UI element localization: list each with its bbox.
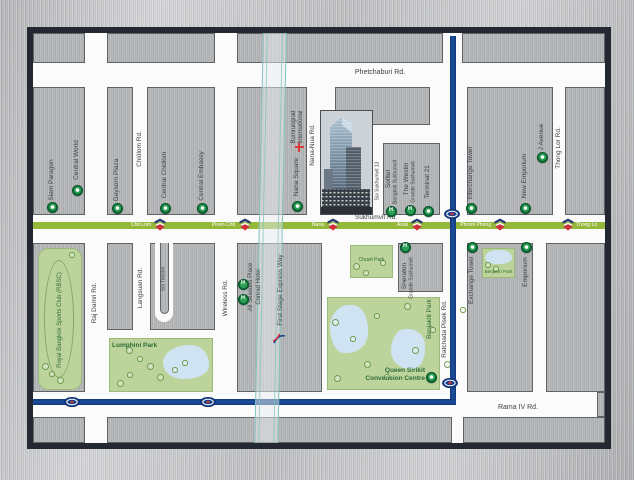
city-block-south [107,417,452,443]
road-label-rama-iv: Rama IV Rd. [473,404,563,412]
road-label-phetchaburi: Phetchaburi Rd. [335,69,425,77]
benjakiti-lake-1 [330,305,368,353]
city-block-east [565,87,605,215]
tree-icon [412,347,419,354]
bts-station-icon [327,218,339,231]
hotel-marker-sofitel: H [386,206,397,217]
bts-station-label-chit-lom: Chit Lom [111,222,151,229]
road-label-wireless: Wireless Rd. [223,280,230,317]
city-block-south [463,417,605,443]
place-label-westin-line2: Grande Sukhumvit [412,161,417,202]
park-label-benjakiti: Benjakiti Park [427,299,434,339]
road-label-ratchada-pisek: Ratchada Pisek Rd. [442,300,449,357]
tree-icon [147,363,154,370]
place-label-all-seasons-line2: Conrad Hotel [256,269,262,304]
place-label-westin-line1: The Westin [404,163,411,196]
place-label-siam-paragon: Siam Paragon [49,159,56,200]
place-label-sheraton-line2: Grande Sukhumvit [410,257,415,298]
place-label-bumrungrad-line2: International [298,110,304,143]
poi-marker-j-avenue [537,152,548,163]
park-label-benjasiri: Benjasiri Park [479,269,518,274]
road-label-langsuan: Langsuan Rd. [138,268,145,308]
expressway-logo-icon [272,332,286,346]
poi-marker-gaysorn-plaza [112,203,123,214]
tree-icon [127,372,133,378]
bts-station-icon [494,218,506,231]
place-label-new-emporium: New Emporium [522,154,529,198]
place-label-exchange-tower: Exchange Tower [469,256,476,304]
city-block [462,33,605,63]
poi-marker-qsncc [426,372,437,383]
road-label-chidlom: Chidlom Rd. [137,131,144,167]
tree-icon [332,319,339,326]
bts-station-label-ploen-chit: Ploen Chit [195,222,235,229]
road-label-soi-tonson: Soi Tonson [162,267,167,292]
poi-marker-new-emporium [520,203,531,214]
bts-station-label-thong-lo: Thong Lo [576,222,605,229]
poi-marker-central-chidlom [160,203,171,214]
venue-label-qsncc-line1: Queen Sirikit [345,367,425,374]
place-label-central-chidlom: Central Chidlom [162,152,169,199]
poi-marker-exchange-tower [467,242,478,253]
hotel-marker-westin: H [405,205,416,216]
road-label-thong-lor: Thong Lor Rd. [556,127,563,169]
road-label-sukhumvit: Sukhumvit Rd. [336,214,416,221]
city-block [107,33,215,63]
place-label-emporium: Emporium [523,257,530,287]
mrt-station-icon [200,397,216,407]
road-label-expressway: First Stage Express Way [278,254,285,325]
city-block-langsuan-w [107,243,133,330]
hotel-marker-sheraton: H [400,242,411,253]
place-label-sheraton-line1: Sheraton [402,263,409,289]
tree-icon [137,356,143,362]
mrt-station-icon [442,378,458,388]
tree-icon [182,360,188,366]
place-label-gaysorn-plaza: Gaysorn Plaza [114,159,121,202]
tree-icon [117,380,124,387]
bts-station-label-phrom-phong: Phrom Phong [449,222,491,229]
tree-icon [172,367,178,373]
road-label-raj-damri: Raj Damri Rd. [92,283,99,324]
tree-icon [334,375,341,382]
tree-icon [157,374,164,381]
place-label-sofitel-line2: Bangkok Sukhumvit [394,160,399,204]
poi-marker-terminal-21 [423,206,434,217]
city-block-interchange [467,87,553,215]
place-label-j-avenue: J Avenue [539,124,546,151]
bts-station-icon [154,218,166,231]
place-label-all-seasons-line1: All Seasons Place [248,263,254,311]
tree-icon [42,363,49,370]
bts-station-icon [562,218,574,231]
skyscraper-illustration [321,111,372,214]
poi-marker-siam-paragon [47,202,58,213]
hotel-marker-conrad: H [238,294,249,305]
street-map: Phetchaburi Rd. Sukhumvit Rd. Rama IV Rd… [33,33,605,443]
place-label-sofitel-line1: Sofitel [386,170,393,188]
benjakiti-lake-2 [391,329,425,369]
park-label-rbsc: Royal Bangkok Sports Club (RBSC) [57,272,63,368]
place-label-nana-square: Nana Square [294,158,301,196]
hotel-marker-all-seasons: H [238,279,249,290]
place-label-terminal-21: Terminal 21 [425,165,432,199]
city-block-south [33,417,85,443]
road-label-nana-nua: Nana-Nua Rd. [310,124,317,166]
bts-station-icon [411,218,423,231]
poi-marker-central-embassy [197,203,208,214]
interchange21-tower-photo [320,110,373,215]
tree-icon [69,252,75,258]
tree-icon [49,371,55,377]
city-block-emporium [546,243,605,392]
bts-station-icon [239,218,251,231]
bts-station-label-asok: Asok [368,222,408,229]
poi-marker-emporium [521,242,532,253]
poi-marker-nana-square [292,201,303,212]
poi-marker-interchange-tower [466,203,477,214]
park-label-lumphini: Lumphini Park [112,342,157,349]
city-block-sliver [597,392,605,417]
city-block [33,33,85,63]
tree-icon [57,377,64,384]
place-label-central-world: Central World [74,140,81,180]
brushed-metal-background: Phetchaburi Rd. Sukhumvit Rd. Rama IV Rd… [0,0,634,480]
tree-icon [485,262,491,268]
place-label-bumrungrad-line1: Bumrungrad [291,110,297,143]
place-label-interchange-tower: Interchange Tower [468,146,475,199]
mrt-blue-line-vertical [450,36,456,404]
hospital-cross-icon-bumrungrad [295,143,304,152]
road-label-soi-sukhumvit-13: Soi Sukhumvit 13 [376,162,381,201]
tree-icon [350,336,356,342]
park-label-chuvit: Chuvit Park [350,258,393,263]
mrt-station-icon [64,397,80,407]
venue-label-qsncc-line2: Convension Centre [345,375,425,382]
bts-station-label-nana: Nana [284,222,324,229]
tree-icon [374,313,380,319]
mrt-blue-line-horizontal [33,399,456,405]
tree-icon [460,307,466,313]
tree-icon [353,263,360,270]
place-label-central-embassy: Central Embassy [199,151,206,201]
mrt-station-icon [444,209,460,219]
tree-icon [363,270,369,276]
poi-marker-central-world [72,185,83,196]
tree-icon [404,303,411,310]
